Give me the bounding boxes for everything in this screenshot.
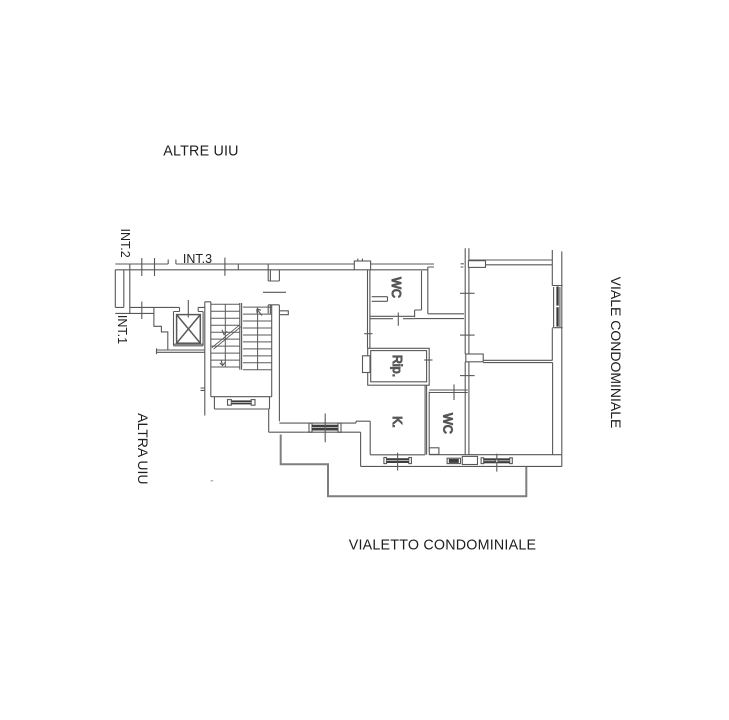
svg-text:ALTRA UIU: ALTRA UIU — [135, 413, 151, 484]
svg-text:WC: WC — [440, 413, 454, 434]
svg-text:INT.2: INT.2 — [118, 229, 132, 258]
svg-text:WC: WC — [389, 277, 403, 298]
svg-text:INT.3: INT.3 — [183, 252, 212, 266]
svg-text:K.: K. — [390, 416, 404, 428]
svg-text:Rip.: Rip. — [390, 355, 404, 377]
svg-text:INT.1: INT.1 — [115, 315, 129, 344]
svg-text:ALTRE UIU: ALTRE UIU — [163, 143, 238, 159]
svg-text:VIALE CONDOMINIALE: VIALE CONDOMINIALE — [608, 277, 624, 429]
svg-text:VIALETTO CONDOMINIALE: VIALETTO CONDOMINIALE — [349, 538, 536, 554]
